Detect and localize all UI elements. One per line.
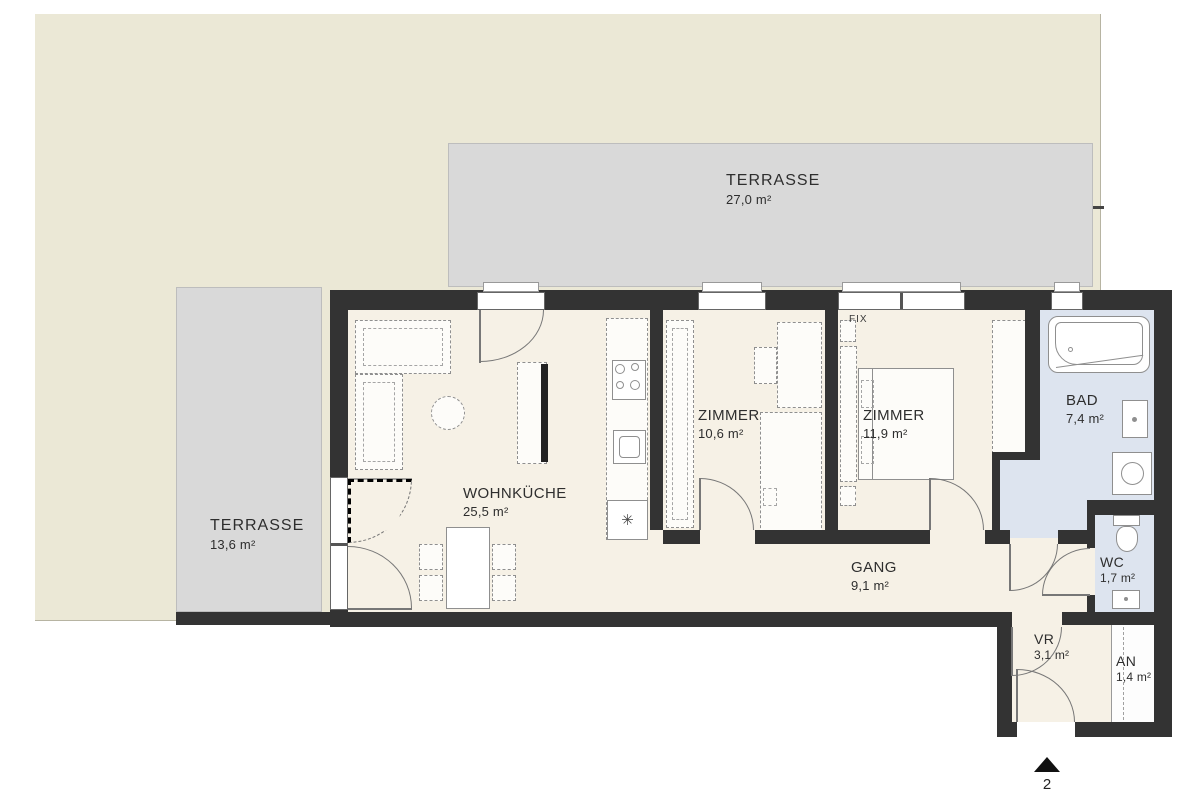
room-name: VR — [1034, 630, 1069, 648]
terrace-top — [448, 143, 1093, 287]
window-sill — [1054, 282, 1080, 292]
dining-chair — [492, 544, 516, 570]
dining-chair — [419, 575, 443, 601]
room-area: 7,4 m² — [1066, 411, 1104, 428]
window-mullion — [900, 293, 903, 309]
wall-vr-left — [997, 612, 1012, 737]
wall-bottom-main — [330, 612, 1012, 627]
burner-icon — [630, 380, 640, 390]
garden-boundary-tick — [1092, 206, 1104, 209]
room-label-bad: BAD 7,4 m² — [1066, 391, 1104, 427]
desk-chair-zimmer1 — [754, 347, 777, 384]
french-door-frame — [330, 477, 348, 610]
room-name: TERRASSE — [726, 171, 820, 192]
desk-zimmer1 — [777, 322, 822, 408]
wall-zimmer1-zimmer2 — [825, 310, 838, 530]
room-area: 1,4 m² — [1116, 670, 1151, 686]
entrance-arrow-icon — [1034, 757, 1060, 772]
room-area: 1,7 m² — [1100, 571, 1135, 587]
coffee-table — [431, 396, 465, 430]
burner-icon — [615, 364, 625, 374]
wall-wc-left-upper — [1087, 515, 1095, 548]
room-area: 10,6 m² — [698, 426, 760, 443]
kitchen-sink-basin — [619, 436, 640, 458]
wall-vr-bottom-left — [997, 722, 1017, 737]
room-area: 9,1 m² — [851, 578, 897, 595]
window-bad — [1051, 292, 1083, 310]
window-zimmer1 — [698, 292, 766, 310]
room-area: 11,9 m² — [863, 426, 925, 443]
room-area: 27,0 m² — [726, 192, 820, 209]
wall-wohnkueche-zimmer1 — [650, 310, 663, 530]
room-label-terrace-top: TERRASSE 27,0 m² — [726, 171, 820, 209]
wall-gang-seg3 — [985, 530, 1010, 544]
wall-wc-bottom — [1087, 612, 1157, 625]
wall-vr-bottom-right — [1075, 722, 1172, 737]
bathtub-inner — [1055, 322, 1143, 365]
wall-gang-seg2 — [755, 530, 930, 544]
burner-icon — [631, 363, 639, 371]
wall-wc-top — [1087, 500, 1157, 515]
room-name: ZIMMER — [863, 406, 925, 426]
window-sill — [842, 282, 961, 292]
fix-window-label: FIX — [849, 314, 868, 325]
room-name: WOHNKÜCHE — [463, 484, 567, 504]
wardrobe-zimmer1-inner — [672, 328, 688, 520]
wall-bad-step-v — [992, 458, 1000, 538]
room-name: TERRASSE — [210, 516, 304, 537]
room-label-zimmer2: ZIMMER 11,9 m² — [863, 406, 925, 442]
toilet-bowl — [1116, 526, 1138, 552]
wardrobe-zimmer2-right — [992, 320, 1026, 454]
washbasin-wc-dot — [1124, 597, 1128, 601]
unit-number: 2 — [1034, 776, 1060, 793]
room-name: BAD — [1066, 391, 1104, 411]
room-label-terrace-left: TERRASSE 13,6 m² — [210, 516, 304, 554]
dining-chair — [419, 544, 443, 570]
window-sill — [702, 282, 762, 292]
room-name: ZIMMER — [698, 406, 760, 426]
wardrobe-zimmer2 — [840, 346, 857, 482]
sofa-cushions — [363, 328, 443, 366]
window-sill — [483, 282, 539, 292]
sofa-chaise-cushions — [363, 382, 395, 462]
burner-icon — [616, 381, 624, 389]
room-label-gang: GANG 9,1 m² — [851, 558, 897, 594]
french-door-leaf — [348, 608, 412, 610]
terrace-door-frame — [477, 292, 545, 310]
dining-table — [446, 527, 490, 609]
freezer-symbol-icon: ✳ — [621, 511, 634, 529]
room-area: 13,6 m² — [210, 537, 304, 554]
wall-zimmer2-bad — [1025, 310, 1040, 458]
room-name: AN — [1116, 652, 1151, 670]
wall-gang-seg1 — [663, 530, 700, 544]
freezer-appliance: ✳ — [607, 500, 648, 540]
tv-panel — [541, 364, 548, 462]
wall-wc-left-lower — [1087, 595, 1095, 612]
room-area: 25,5 m² — [463, 504, 567, 521]
bathtub-drain — [1068, 347, 1073, 352]
pillow-zimmer1 — [763, 488, 777, 506]
room-label-wc: WC 1,7 m² — [1100, 553, 1135, 587]
terrace-left-parapet — [176, 612, 332, 625]
dining-chair — [492, 575, 516, 601]
room-name: GANG — [851, 558, 897, 578]
room-label-vr: VR 3,1 m² — [1034, 630, 1069, 664]
terrace-left — [176, 287, 322, 612]
window-zimmer2-fix — [838, 292, 965, 310]
room-label-wohnkueche: WOHNKÜCHE 25,5 m² — [463, 484, 567, 520]
pillow-zimmer2 — [861, 380, 874, 408]
room-name: WC — [1100, 553, 1135, 571]
wall-gang-vr-stub — [1062, 612, 1087, 625]
window-mullion — [331, 543, 347, 546]
toilet-tank — [1113, 515, 1140, 526]
washing-machine-drum — [1121, 462, 1144, 485]
room-label-zimmer1: ZIMMER 10,6 m² — [698, 406, 760, 442]
bed-zimmer1 — [760, 412, 822, 533]
washbasin-bad-dot — [1132, 417, 1137, 422]
floor-plan: ✳ — [0, 0, 1200, 805]
wall-right — [1154, 310, 1172, 737]
room-label-an: AN 1,4 m² — [1116, 652, 1151, 686]
room-area: 3,1 m² — [1034, 648, 1069, 664]
nightstand — [840, 486, 856, 506]
